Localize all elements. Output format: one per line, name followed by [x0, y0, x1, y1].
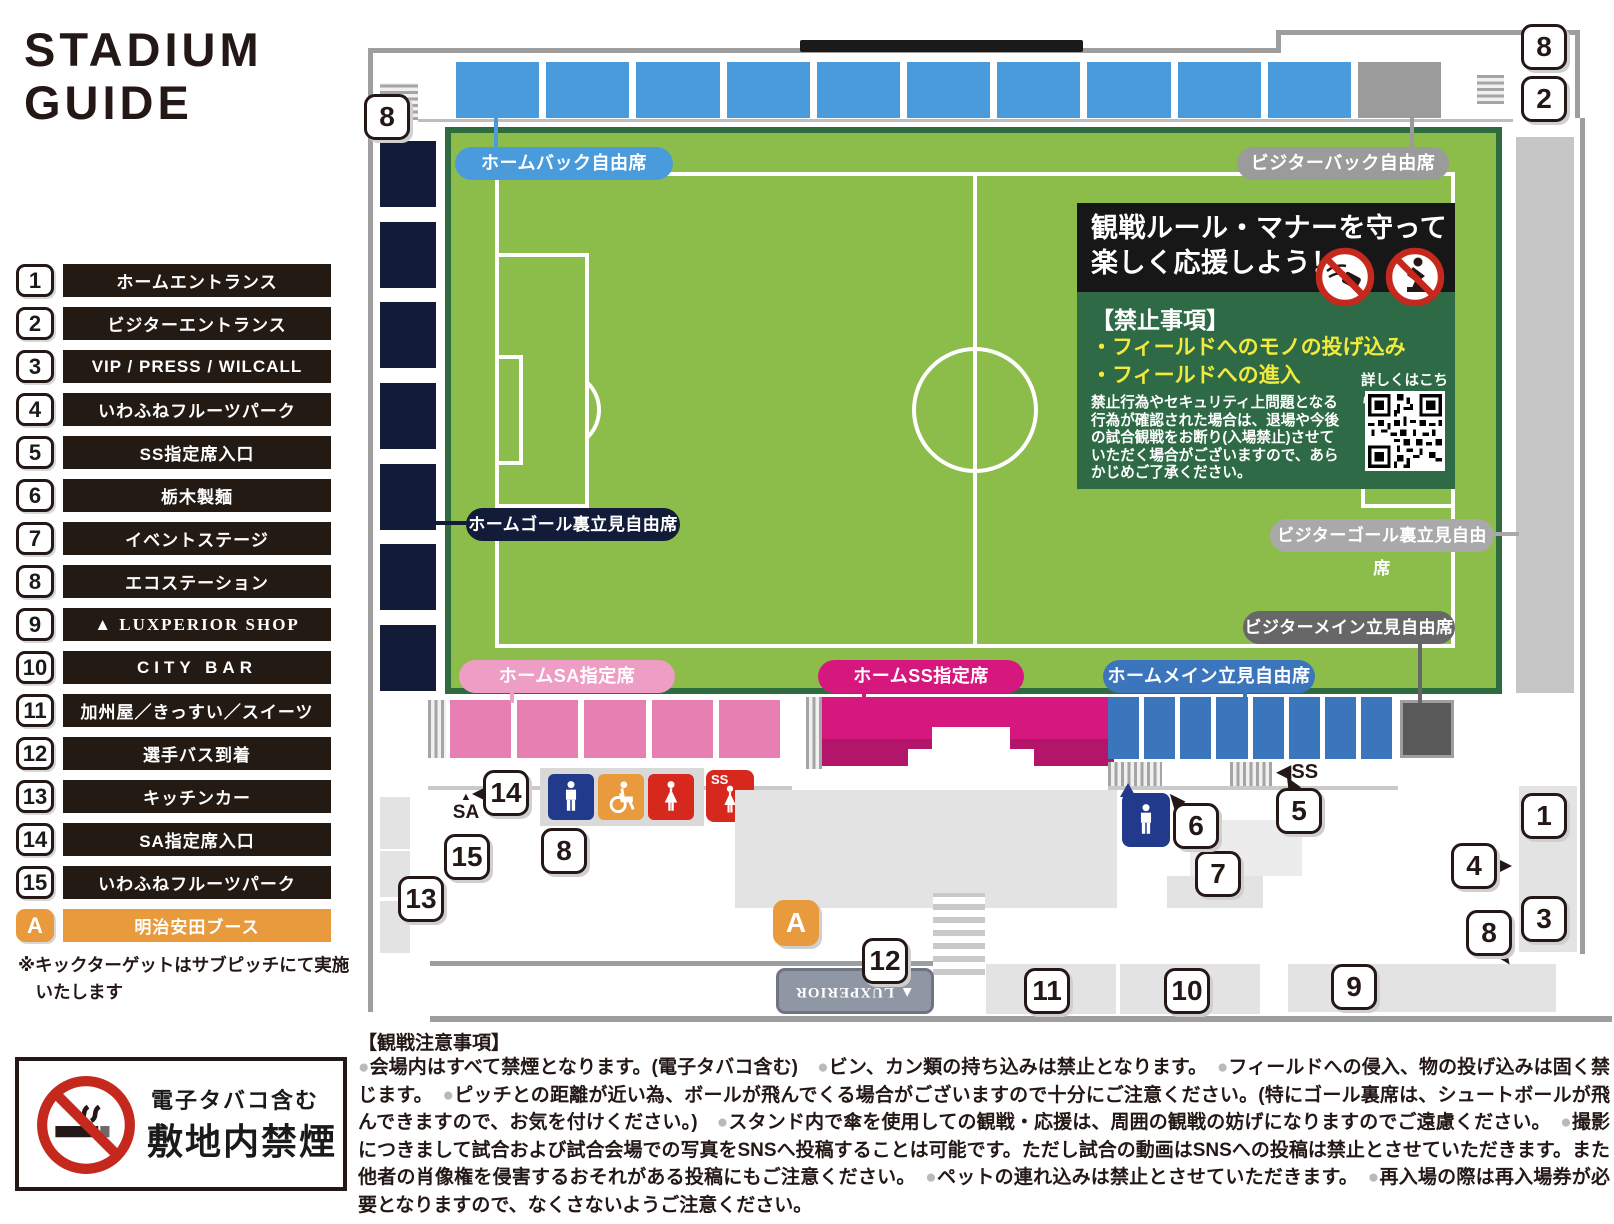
visitor-back-connector — [1410, 118, 1414, 149]
visitor-main-connector — [1418, 643, 1422, 703]
pitch-goal-box-left — [495, 355, 523, 465]
home-back-seat-block — [997, 62, 1080, 118]
home-back-seat-block — [1178, 62, 1261, 118]
hatch-ss-left — [806, 697, 822, 769]
visitor-back-label: ビジターバック自由席 — [1237, 147, 1449, 180]
map-badge-7-event-stage: 7 — [1195, 851, 1241, 897]
stairs-top-right — [1477, 75, 1504, 104]
map-badge-13-kitchen-car: 13 — [398, 876, 444, 922]
home-goal-back-connector — [436, 521, 467, 525]
visitor-main-label: ビジターメイン立見自由席 — [1243, 611, 1455, 644]
home-back-seat-block — [817, 62, 900, 118]
plaza-steps — [933, 893, 985, 975]
rules-prohibited-heading: 【禁止事項】 — [1091, 301, 1229, 335]
home-back-label: ホームバック自由席 — [455, 147, 673, 180]
map-badge-a-meiji-yasuda: A — [773, 900, 819, 946]
home-back-connector — [494, 89, 498, 149]
sa-seat-block — [517, 700, 578, 758]
home-back-seat-block — [727, 62, 810, 118]
map-badge-2-visitor-entrance: 2 — [1521, 76, 1567, 122]
visitor-main-standing-block — [1400, 700, 1454, 758]
home-sa-seats — [450, 700, 780, 758]
back-stand-seats — [456, 62, 1441, 118]
sa-seat-block — [719, 700, 780, 758]
home-back-seat-block — [907, 62, 990, 118]
goal-back-seat-block — [380, 544, 436, 610]
map-badge-15-fruit-park: 15 — [444, 834, 490, 880]
concourse-line — [418, 119, 1513, 122]
womens-toilet-icon — [648, 774, 694, 820]
rules-prohibited-item2: ・フィールドへの進入 — [1091, 359, 1301, 389]
pitch-arc-left — [589, 370, 611, 450]
rules-prohibited-item1: ・フィールドへのモノの投げ込み — [1091, 331, 1406, 361]
no-throwing-icon — [1315, 247, 1375, 307]
goal-back-seat-block — [380, 141, 436, 207]
main-seat-block — [1180, 697, 1211, 759]
sa-seat-block — [584, 700, 645, 758]
hatch-sa-left — [428, 700, 446, 758]
main-seat-block — [1108, 697, 1139, 759]
map-badge-6-tochigi-seimen: 6 — [1173, 803, 1219, 849]
boundary-bottom — [430, 1016, 1612, 1022]
goal-back-seat-block — [380, 464, 436, 530]
ss-toilet-tag: SS — [711, 772, 728, 787]
map-badge-5-ss-entrance: 5 — [1276, 788, 1322, 834]
boundary-right-top — [1575, 30, 1580, 118]
rules-box: 観戦ルール・マナーを守って 楽しく応援しよう！ 【禁止事項】 ・フィールドへのモ… — [1077, 203, 1455, 489]
booth-left-1 — [380, 797, 410, 849]
mens-toilet-icon — [548, 774, 594, 820]
no-pitch-entry-icon — [1385, 247, 1445, 307]
home-goal-back-seats — [380, 141, 436, 691]
home-back-seat-block — [1087, 62, 1170, 118]
map-badge-1-home-entrance: 1 — [1521, 793, 1567, 839]
visitor-goal-back-connector — [1493, 532, 1519, 536]
main-seat-block — [1325, 697, 1356, 759]
bus-logo: ▲ LUXPERIOR — [795, 983, 915, 1000]
road-line — [430, 961, 935, 966]
pitch-center-circle — [912, 347, 1038, 473]
stadium-map: 観戦ルール・マナーを守って 楽しく応援しよう！ 【禁止事項】 ・フィールドへのモ… — [0, 0, 1614, 1224]
main-concourse-line — [1108, 786, 1398, 790]
mens-toilet-pointer — [1120, 783, 1136, 797]
map-badge-14-sa-entrance: 14 — [483, 770, 529, 816]
scoreboard-bar — [800, 40, 1083, 52]
main-plaza — [735, 790, 1117, 908]
boundary-left — [368, 48, 373, 1012]
map-badge-11-shops: 11 — [1024, 968, 1070, 1014]
visitor-back-seat-block — [1358, 62, 1441, 118]
team-bus: ▲ LUXPERIOR — [776, 968, 934, 1014]
rules-paragraph: 禁止行為やセキュリティ上問題となる行為が確認された場合は、退場や今後の試合観戦を… — [1091, 395, 1347, 483]
home-back-seat-block — [1268, 62, 1351, 118]
sa-gate-text: SA — [449, 803, 483, 822]
map-badge-8-top-left: 8 — [364, 94, 410, 140]
main-seat-block — [1144, 697, 1175, 759]
home-back-seat-block — [636, 62, 719, 118]
main-seat-block — [1361, 697, 1392, 759]
home-back-seat-block — [546, 62, 629, 118]
mens-toilet-icon-main — [1122, 793, 1170, 847]
home-goal-back-label: ホームゴール裏立見自由席 — [466, 508, 680, 541]
main-seat-block — [1289, 697, 1320, 759]
visitor-concourse-strip — [1516, 137, 1574, 693]
home-main-label: ホームメイン立見自由席 — [1103, 660, 1315, 693]
sa-seat-block — [450, 700, 511, 758]
accessible-toilet-icon — [598, 774, 644, 820]
goal-back-seat-block — [380, 625, 436, 691]
map-badge-10-city-bar: 10 — [1164, 968, 1210, 1014]
hatch-main-right — [1230, 762, 1272, 786]
home-main-standing-seats — [1108, 697, 1392, 759]
main-seat-block — [1216, 697, 1247, 759]
booth-shop-9 — [1288, 964, 1556, 1012]
sa-seat-block — [652, 700, 713, 758]
map-badge-8-top-right: 8 — [1521, 24, 1567, 70]
boundary-right — [1580, 118, 1585, 954]
goal-back-seat-block — [380, 302, 436, 368]
home-sa-label: ホームSA指定席 — [459, 660, 675, 693]
home-ss-label: ホームSS指定席 — [818, 660, 1024, 693]
map-badge-12-player-bus: 12 — [862, 938, 908, 984]
ss-notch-lower — [908, 749, 1034, 767]
rules-title-line1: 観戦ルール・マナーを守って — [1091, 211, 1455, 246]
badge-4-pointer — [1496, 858, 1512, 874]
main-seat-block — [1253, 697, 1284, 759]
map-badge-4-fruit-park: 4 — [1451, 843, 1497, 889]
map-badge-8-eco-right: 8 — [1466, 910, 1512, 956]
qr-code — [1365, 391, 1445, 471]
goal-back-seat-block — [380, 383, 436, 449]
map-badge-8-eco-mid: 8 — [541, 828, 587, 874]
map-badge-9-luxperior-shop: 9 — [1331, 964, 1377, 1010]
visitor-goal-back-label: ビジターゴール裏立見自由席 — [1270, 519, 1494, 552]
map-badge-3-vip: 3 — [1521, 896, 1567, 942]
goal-back-seat-block — [380, 222, 436, 288]
